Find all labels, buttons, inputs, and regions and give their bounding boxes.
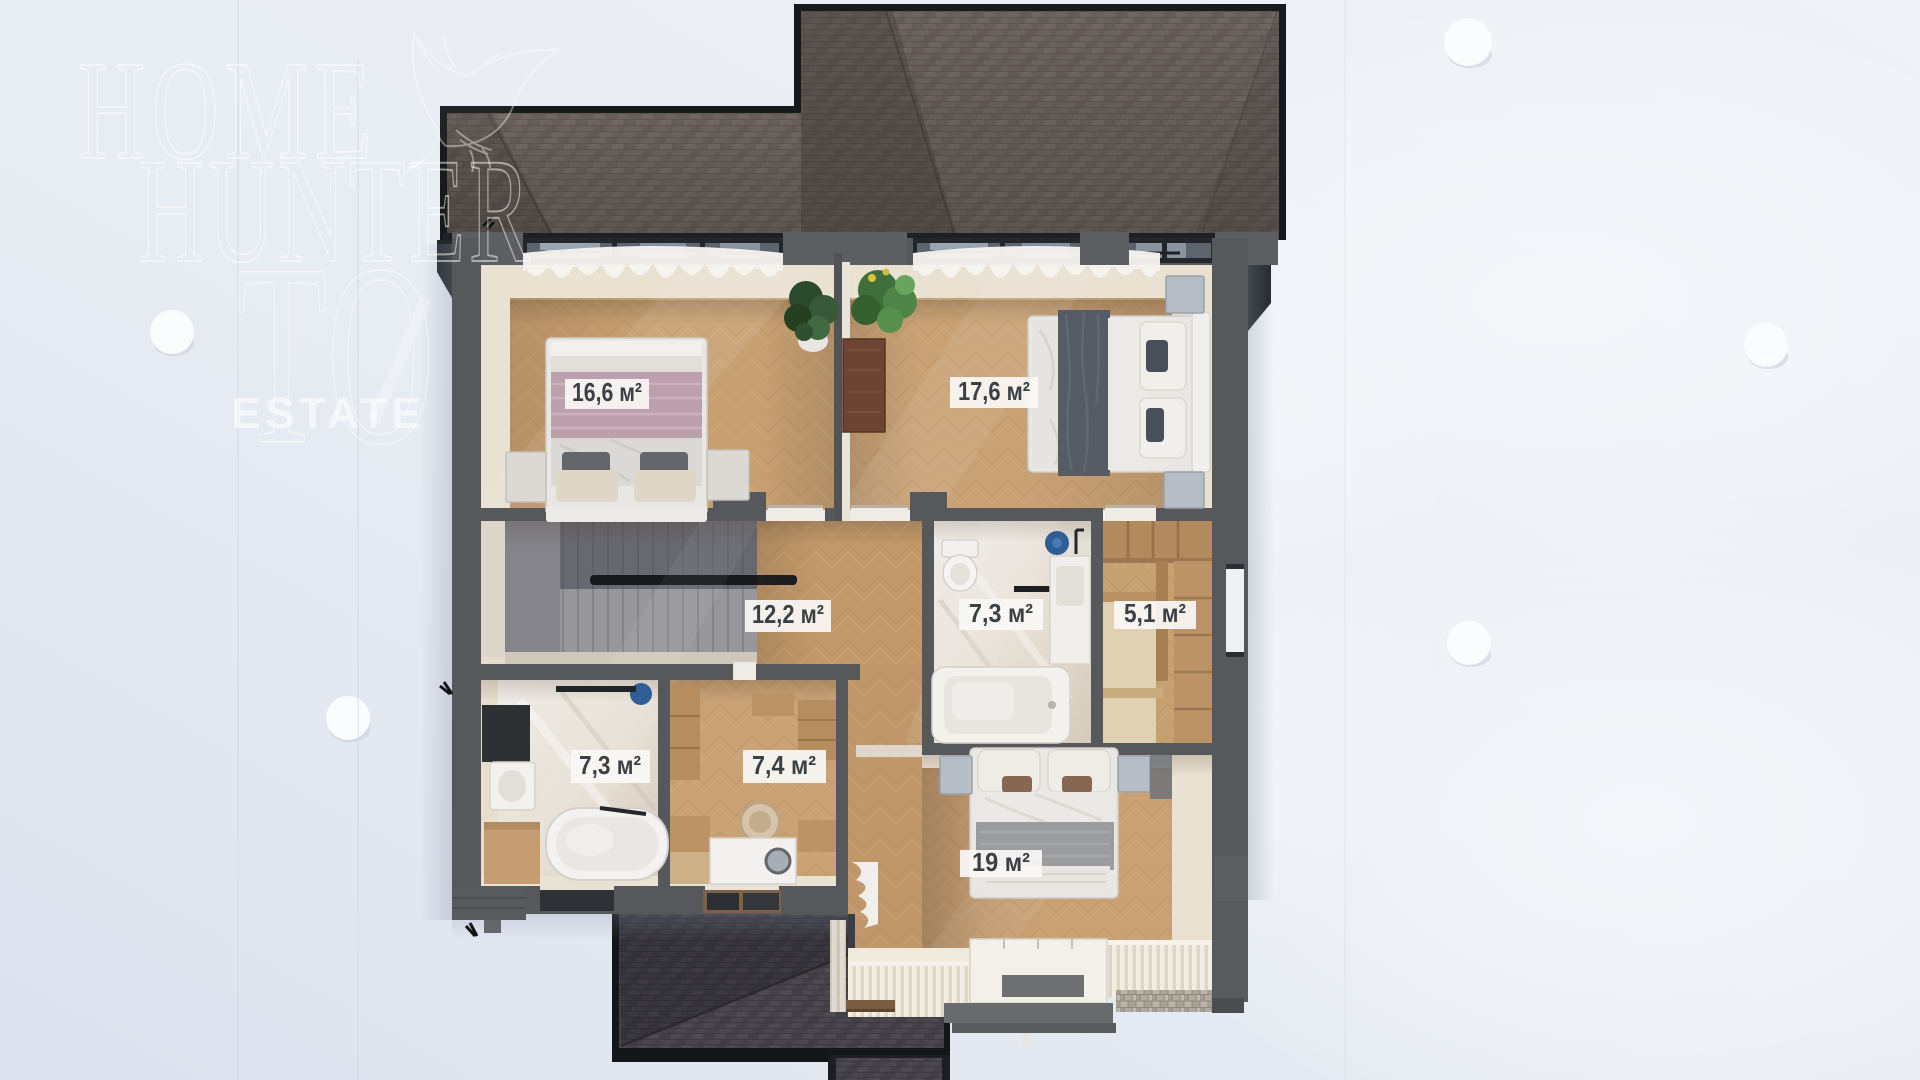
- svg-text:5,1 м²: 5,1 м²: [1124, 598, 1186, 628]
- svg-text:7,3 м²: 7,3 м²: [969, 598, 1033, 628]
- svg-text:16,6 м²: 16,6 м²: [572, 377, 642, 407]
- svg-text:17,6 м²: 17,6 м²: [958, 376, 1030, 406]
- svg-text:ESTATE: ESTATE: [231, 389, 425, 438]
- svg-text:12,2 м²: 12,2 м²: [752, 599, 824, 629]
- svg-text:19 м²: 19 м²: [972, 847, 1030, 877]
- svg-text:7,3 м²: 7,3 м²: [579, 750, 641, 780]
- svg-text:7,4 м²: 7,4 м²: [752, 750, 816, 780]
